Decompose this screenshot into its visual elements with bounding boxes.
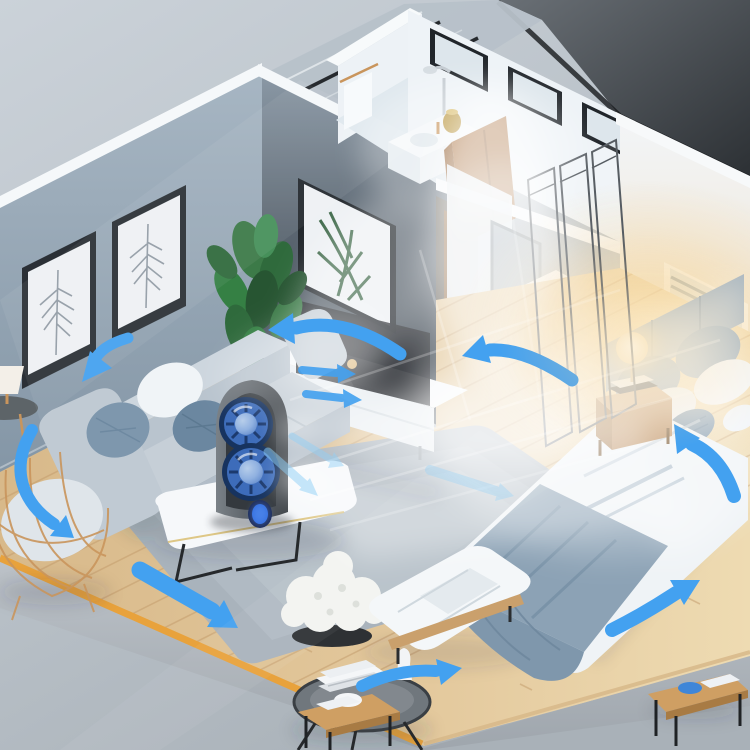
product-render xyxy=(0,0,750,750)
power-button xyxy=(248,500,272,528)
blue-bowl xyxy=(678,682,702,694)
apartment-cutaway-illustration xyxy=(0,0,750,750)
